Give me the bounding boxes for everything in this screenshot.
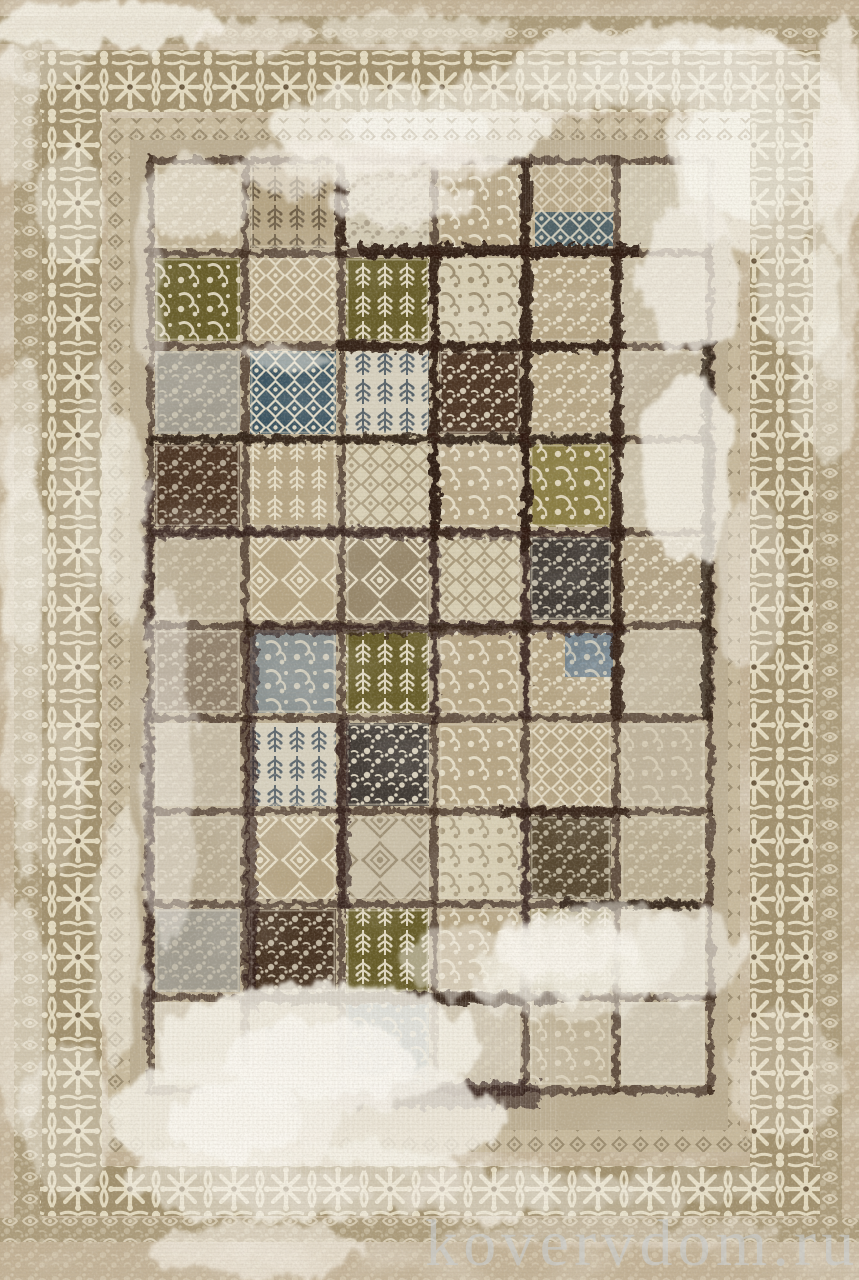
svg-text:kovervdom.ru: kovervdom.ru bbox=[425, 1207, 859, 1280]
